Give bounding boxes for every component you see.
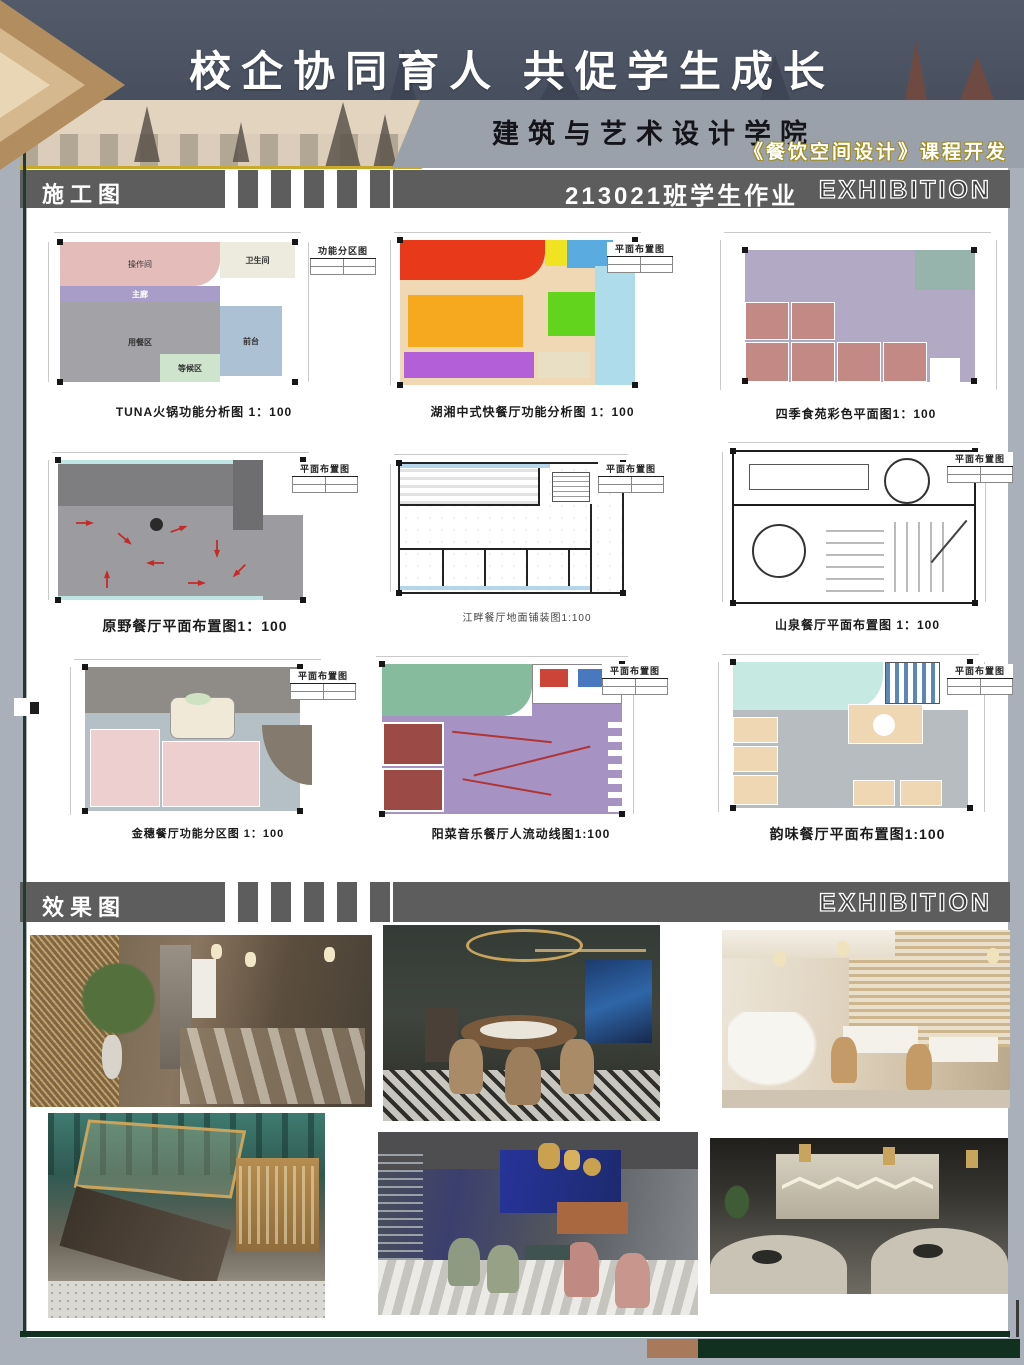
legend-row	[602, 687, 668, 695]
legend-title: 平面布置图	[598, 462, 664, 477]
zone-label: 操作间	[128, 259, 152, 270]
zone-edge	[58, 596, 263, 600]
gold-pendant	[564, 1150, 580, 1170]
gold-divider	[20, 166, 422, 169]
plan-caption: TUNA火锅功能分析图 1：100	[30, 403, 378, 420]
wall	[590, 504, 592, 592]
dimension-line	[724, 232, 991, 233]
zone-label: 前台	[243, 336, 259, 347]
zone-wing	[263, 515, 303, 600]
plan-legend: 功能分区图	[310, 244, 376, 275]
hanging-lantern	[774, 951, 786, 967]
column-marker	[730, 600, 736, 606]
wall	[442, 548, 444, 590]
footer-green-bar	[20, 1331, 1010, 1337]
dining-chair	[505, 1047, 541, 1106]
bottle-rows	[239, 1166, 317, 1244]
section-band-construction: 施工图 213021班学生作业 EXHIBITION	[20, 170, 1010, 208]
plan-card-riverside: 平面布置图 江畔餐厅地面铺装图1:100	[388, 448, 666, 626]
dining-chair	[906, 1044, 932, 1090]
legend-title: 功能分区图	[310, 244, 376, 259]
zone-label: 等候区	[178, 363, 202, 374]
plan-legend: 平面布置图	[290, 669, 356, 700]
round-table	[873, 714, 895, 736]
zone-floor-purple	[532, 704, 622, 716]
college-band: 建筑与艺术设计学院 《餐饮空间设计》课程开发	[392, 100, 1024, 168]
plan-card-jinsui: 平面布置图 金穗餐厅功能分区图 1：100	[58, 655, 358, 843]
hotpot-pot	[913, 1244, 943, 1258]
wall	[568, 548, 570, 590]
zone-green	[185, 693, 211, 705]
table-top	[525, 1245, 570, 1260]
column-marker	[55, 597, 61, 603]
zone-dining	[408, 295, 523, 347]
dining-tables	[180, 1028, 365, 1104]
pendant-lamp	[324, 947, 335, 962]
plan-caption: 湖湘中式快餐厅功能分析图 1：100	[390, 403, 675, 420]
zone-private-room	[745, 342, 789, 382]
dimension-line	[308, 242, 309, 382]
zone-corridor: 主廊	[60, 286, 220, 302]
zone-label: 卫生间	[246, 255, 270, 266]
header-banner: 校企协同育人 共促学生成长	[0, 0, 1024, 100]
dimension-line	[394, 454, 628, 455]
zone-private-tan	[733, 717, 778, 743]
square-table-white	[929, 1037, 998, 1062]
zone-striped-room	[885, 662, 940, 704]
column-marker	[379, 661, 385, 667]
dimension-line	[728, 442, 980, 443]
round-table	[752, 524, 806, 578]
zone-private-room	[837, 342, 881, 382]
wall-art	[192, 959, 216, 1017]
column-marker	[620, 590, 626, 596]
column-marker	[396, 590, 402, 596]
ring-chandelier	[466, 929, 583, 962]
zone-private-room	[883, 342, 927, 382]
plan-card-tuna: 操作间 卫生间 主廊 用餐区 等候区 前台 功能分区图 TUNA火锅功能分析图 …	[30, 230, 378, 422]
legend-row	[947, 475, 1013, 483]
legend-title: 平面布置图	[290, 669, 356, 684]
exhibition-poster: 校企协同育人 共促学生成长 建筑与艺术设计学院 《餐饮空间设计》课程开发 施工图…	[0, 0, 1024, 1365]
zone-room-teal	[915, 250, 975, 290]
feature-circle	[150, 518, 163, 531]
zone-stairs	[552, 472, 590, 502]
zone-booths	[404, 352, 534, 378]
zone-private-tan	[853, 780, 895, 806]
potted-plant	[722, 1182, 752, 1223]
green-chair	[448, 1238, 480, 1286]
column-marker	[742, 247, 748, 253]
legend-row	[292, 485, 358, 493]
legend-title: 平面布置图	[947, 664, 1013, 679]
zone-private-room	[791, 342, 835, 382]
plan-caption: 山泉餐厅平面布置图 1：100	[700, 616, 1015, 633]
plan-legend: 平面布置图	[292, 462, 358, 493]
zone-small	[545, 240, 567, 266]
column-marker	[397, 382, 403, 388]
legend-row	[598, 477, 664, 485]
ceiling	[722, 930, 895, 958]
plan-caption: 江畔餐厅地面铺装图1:100	[388, 609, 666, 624]
render-photo-teal-canteen	[48, 1113, 325, 1318]
zone-private-tan	[733, 775, 778, 805]
legend-row	[602, 679, 668, 687]
stripe-decoration	[225, 882, 393, 922]
column-marker	[971, 247, 977, 253]
zone-dark-column	[233, 460, 263, 530]
legend-title: 平面布置图	[602, 664, 668, 679]
zone-private-darkred	[382, 768, 444, 812]
column-marker	[730, 805, 736, 811]
wall	[526, 548, 528, 590]
zone-kitchen-cyan	[733, 662, 883, 710]
counter	[749, 464, 869, 490]
plan-caption: 阳菜音乐餐厅人流动线图1:100	[372, 825, 670, 842]
plan-caption: 韵味餐厅平面布置图1:100	[700, 824, 1015, 844]
zone-frontdesk: 前台	[220, 306, 282, 376]
plan-caption: 四季食苑彩色平面图1：100	[700, 405, 1012, 422]
zone-private-darkred	[382, 722, 444, 766]
right-border-mark	[1016, 1300, 1019, 1337]
legend-row	[292, 477, 358, 485]
dimension-line	[48, 460, 49, 600]
zone-room-red	[540, 669, 568, 687]
dimension-line	[394, 232, 641, 233]
hanging-lantern	[987, 948, 999, 964]
column-marker	[632, 382, 638, 388]
pink-chair	[615, 1253, 650, 1308]
cove-light	[535, 949, 646, 952]
green-chair	[487, 1245, 519, 1293]
service-counter	[557, 1202, 627, 1235]
dining-chair	[831, 1037, 857, 1083]
dimension-line	[722, 452, 723, 602]
render-photo-bright-banquet	[722, 930, 1010, 1108]
hanging-lantern	[799, 1144, 811, 1162]
dimension-line	[54, 232, 301, 233]
plan-card-huxiang: 平面布置图 湖湘中式快餐厅功能分析图 1：100	[390, 230, 675, 422]
zone-private-tan	[733, 746, 778, 772]
hotpot-table	[710, 1235, 847, 1294]
column-marker	[730, 659, 736, 665]
column-marker	[297, 808, 303, 814]
vase	[102, 1035, 123, 1080]
column-marker	[292, 379, 298, 385]
round-room	[884, 458, 930, 504]
column-marker	[396, 460, 402, 466]
plan-card-fourseasons: 四季食苑彩色平面图1：100	[700, 228, 1012, 424]
column-marker	[300, 597, 306, 603]
plan-legend: 平面布置图	[598, 462, 664, 493]
zone-dining-rose	[162, 741, 260, 807]
stripe-decoration	[225, 170, 393, 208]
zone-private-tan	[900, 780, 942, 806]
dimension-line	[376, 656, 628, 657]
plan-legend: 平面布置图	[607, 242, 673, 273]
dimension-line	[52, 452, 309, 453]
legend-title: 平面布置图	[947, 452, 1013, 467]
legend-row	[607, 265, 673, 273]
pendant-lamp	[211, 944, 222, 959]
column-marker	[82, 808, 88, 814]
dimension-line	[996, 240, 997, 390]
column-marker	[742, 378, 748, 384]
main-title: 校企协同育人 共促学生成长	[0, 38, 1024, 99]
zone-restroom: 卫生间	[220, 242, 295, 278]
dimension-line	[720, 240, 721, 390]
column-marker	[379, 811, 385, 817]
legend-row	[947, 687, 1013, 695]
column-marker	[967, 805, 973, 811]
dimension-line	[390, 240, 391, 385]
zone-waiting: 等候区	[160, 354, 220, 382]
legend-row	[290, 684, 356, 692]
potted-plant	[74, 963, 163, 1042]
plan-card-yunwei: 平面布置图 韵味餐厅平面布置图1:100	[700, 650, 1015, 846]
column-marker	[57, 239, 63, 245]
zone-label: 用餐区	[128, 337, 152, 348]
legend-title: 平面布置图	[607, 242, 673, 257]
legend-row	[290, 692, 356, 700]
plan-caption: 原野餐厅平面布置图1：100	[30, 616, 360, 636]
floor	[722, 1090, 1010, 1108]
zone-edge	[400, 586, 590, 590]
dimension-line	[718, 662, 719, 812]
footer-green-block	[698, 1339, 1020, 1358]
plan-legend: 平面布置图	[947, 664, 1013, 695]
hanging-lantern	[966, 1150, 978, 1168]
dining-chair	[560, 1039, 593, 1094]
legend-row	[947, 679, 1013, 687]
legend-row	[310, 259, 376, 267]
zone-hall	[595, 266, 635, 385]
zone-private-room	[791, 302, 835, 340]
zone-booths	[608, 722, 622, 812]
seat-rows	[826, 522, 884, 592]
zone-edge	[400, 464, 550, 468]
dining-chair	[449, 1039, 482, 1094]
zone-dining-rose	[90, 729, 160, 807]
column-marker	[55, 457, 61, 463]
column-marker	[730, 448, 736, 454]
lazy-susan	[480, 1021, 558, 1039]
footer-brown-block	[647, 1339, 698, 1358]
zone-label: 主廊	[132, 289, 148, 300]
render-photo-private-room	[383, 925, 660, 1121]
plan-legend: 平面布置图	[602, 664, 668, 695]
round-table-white	[728, 1012, 826, 1094]
plan-card-music: 平面布置图 阳菜音乐餐厅人流动线图1:100	[372, 652, 670, 844]
abstract-artwork	[585, 960, 651, 1042]
section-label: 效果图	[42, 890, 126, 922]
zone-kitchen-green	[382, 664, 532, 716]
column-marker	[972, 600, 978, 606]
zone-kitchen: 操作间	[60, 242, 220, 286]
hanging-lantern	[837, 941, 849, 957]
zone-round-room	[548, 292, 596, 336]
dimension-line	[722, 654, 979, 655]
hotpot-table	[871, 1228, 1008, 1294]
plan-card-wilderness: 平面布置图 原野餐厅平面布置图1：100	[30, 448, 360, 638]
dimension-line	[48, 242, 49, 382]
column-marker	[397, 237, 403, 243]
plan-card-mountainspring: 平面布置图 山泉餐厅平面布置图 1：100	[700, 430, 1015, 635]
pendant-lamp	[245, 952, 256, 967]
terrazzo-floor	[48, 1281, 325, 1318]
wall	[734, 504, 974, 506]
dimension-line	[390, 464, 391, 592]
plan-caption: 金穗餐厅功能分区图 1：100	[58, 825, 358, 841]
left-border-line	[23, 105, 26, 1331]
dimension-line	[74, 659, 321, 660]
wall	[484, 548, 486, 590]
zone-private-room	[745, 302, 789, 340]
zone-hatched-room	[400, 464, 540, 506]
wall	[400, 548, 590, 550]
render-photo-earthy-dining	[30, 935, 372, 1107]
exhibition-wordmark: EXHIBITION	[819, 176, 992, 205]
column-marker	[971, 378, 977, 384]
herringbone-floor	[378, 1260, 698, 1315]
gold-pendant	[538, 1143, 560, 1169]
legend-row	[310, 267, 376, 275]
border-notch-mark	[30, 702, 39, 714]
long-counter	[59, 1186, 230, 1289]
section-band-renders: 效果图 EXHIBITION	[20, 882, 1010, 922]
column-marker	[619, 811, 625, 817]
legend-row	[598, 485, 664, 493]
class-line: 213021班学生作业	[565, 176, 798, 211]
plan-legend: 平面布置图	[947, 452, 1013, 483]
legend-row	[607, 257, 673, 265]
sketch-texture	[20, 134, 422, 168]
render-photo-hotpot-hall	[710, 1138, 1008, 1294]
section-label: 施工图	[42, 177, 126, 209]
zone-entry	[930, 358, 960, 382]
legend-row	[947, 467, 1013, 475]
gold-pendant	[583, 1158, 601, 1176]
hanging-lantern	[883, 1147, 895, 1165]
course-name: 《餐饮空间设计》课程开发	[744, 137, 1008, 164]
column-marker	[57, 379, 63, 385]
dimension-line	[70, 667, 71, 815]
zone-tables	[538, 352, 590, 378]
column-marker	[82, 664, 88, 670]
legend-title: 平面布置图	[292, 462, 358, 477]
render-photo-blue-bistro	[378, 1132, 698, 1315]
column-marker	[292, 239, 298, 245]
zone-kitchen	[400, 240, 545, 280]
exhibition-wordmark: EXHIBITION	[819, 889, 992, 918]
gold-mesh-canopy	[74, 1120, 247, 1199]
